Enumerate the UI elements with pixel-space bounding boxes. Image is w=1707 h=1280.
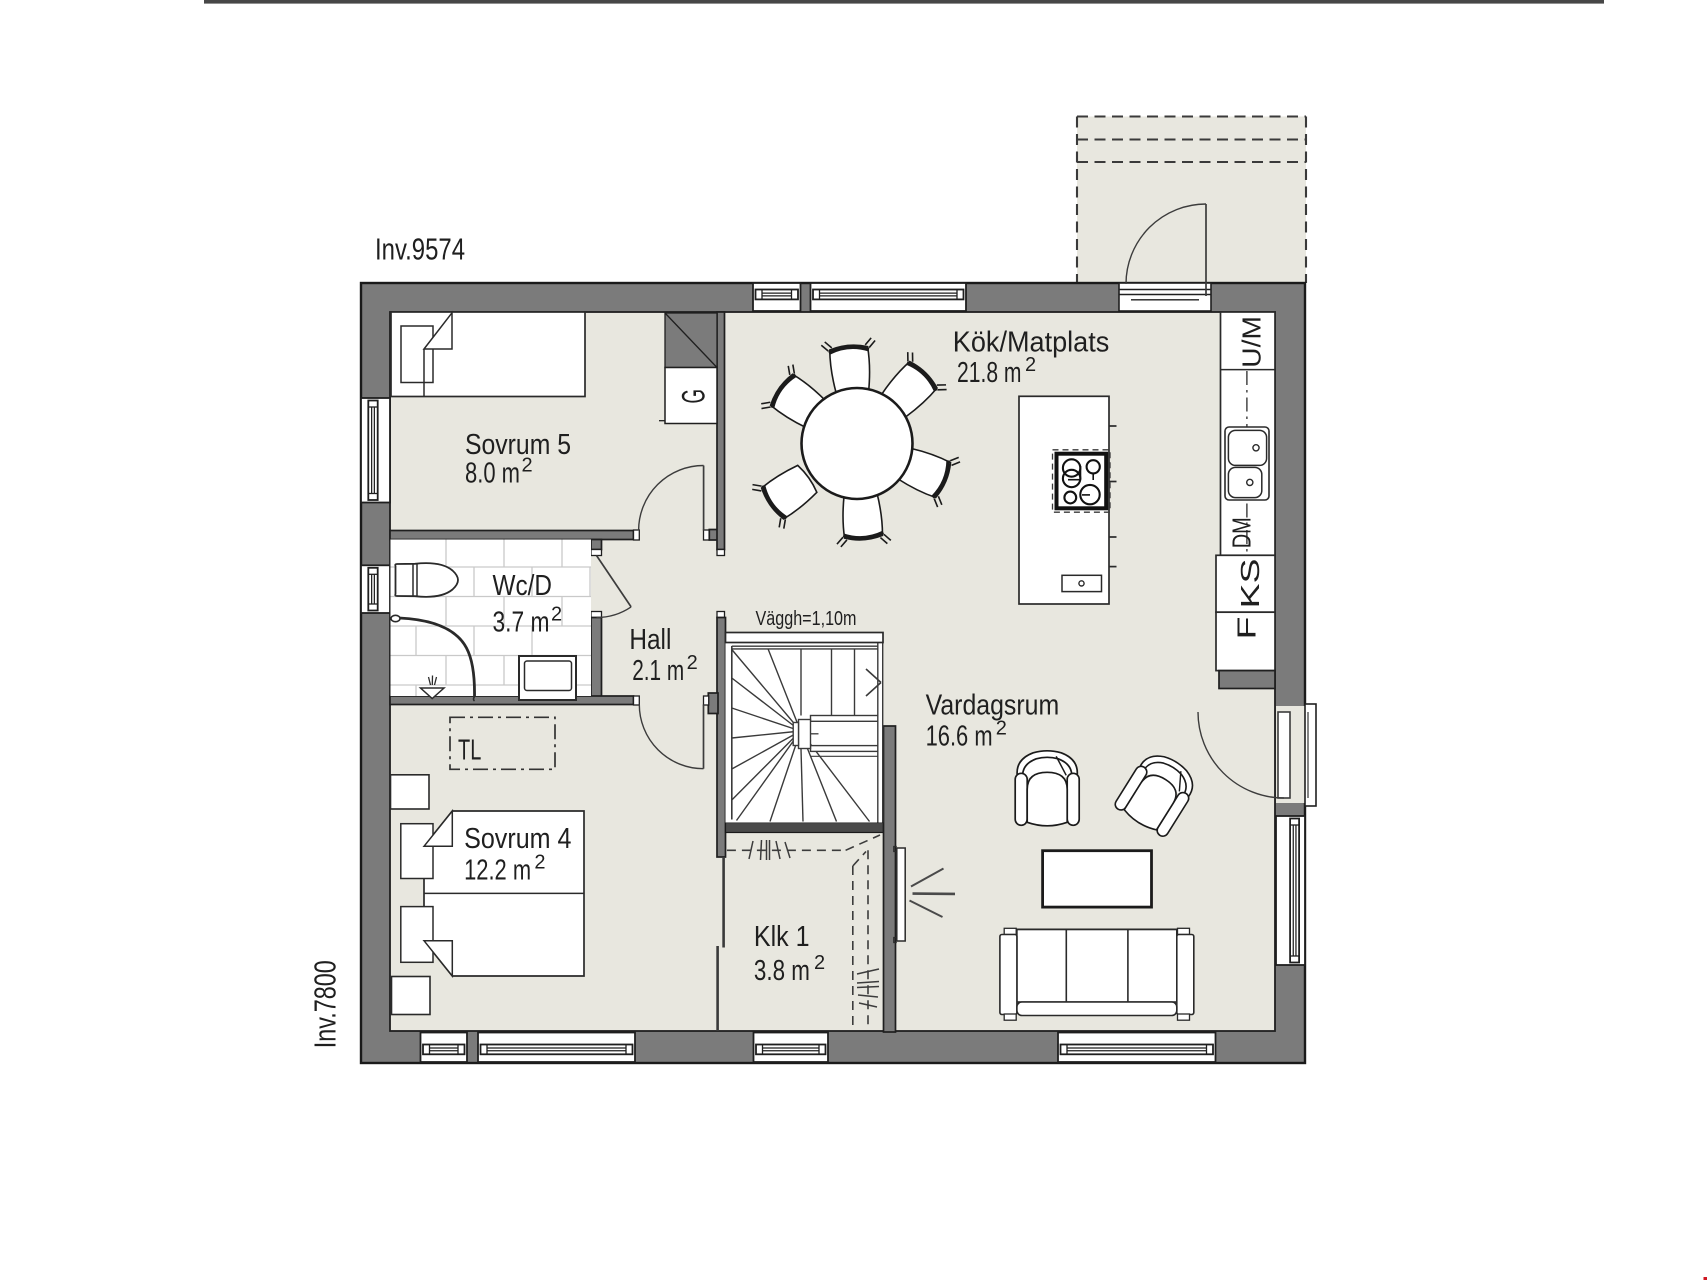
svg-text:TL: TL: [458, 735, 481, 767]
svg-text:2: 2: [534, 851, 545, 873]
svg-text:KS: KS: [1235, 559, 1265, 609]
svg-text:2: 2: [1025, 354, 1036, 376]
svg-text:Inv.7800: Inv.7800: [308, 960, 343, 1048]
svg-text:2: 2: [551, 604, 562, 626]
svg-text:8.0 m: 8.0 m: [465, 458, 520, 490]
svg-text:DM: DM: [1226, 517, 1256, 548]
svg-text:Klk 1: Klk 1: [754, 921, 810, 953]
svg-text:Sovrum 5: Sovrum 5: [465, 429, 571, 461]
svg-text:G: G: [676, 389, 712, 404]
svg-text:16.6 m: 16.6 m: [926, 721, 993, 753]
svg-text:21.8 m: 21.8 m: [957, 357, 1022, 389]
svg-text:Vardagsrum: Vardagsrum: [926, 690, 1060, 722]
svg-text:3.7 m: 3.7 m: [493, 607, 550, 639]
svg-text:2: 2: [522, 455, 533, 477]
svg-text:12.2 m: 12.2 m: [464, 854, 531, 886]
svg-text:F: F: [1231, 617, 1261, 640]
svg-text:Sovrum 4: Sovrum 4: [464, 823, 571, 855]
svg-text:Wc/D: Wc/D: [493, 570, 553, 602]
svg-text:3.8 m: 3.8 m: [754, 955, 810, 987]
svg-text:Hall: Hall: [629, 624, 671, 656]
svg-text:Väggh=1,10m: Väggh=1,10m: [756, 608, 857, 630]
svg-text:2: 2: [814, 952, 825, 974]
svg-text:2: 2: [996, 718, 1007, 740]
svg-text:2: 2: [687, 652, 698, 674]
svg-text:2.1 m: 2.1 m: [632, 655, 684, 687]
svg-text:U/M: U/M: [1236, 316, 1266, 368]
svg-text:Inv.9574: Inv.9574: [375, 232, 465, 267]
